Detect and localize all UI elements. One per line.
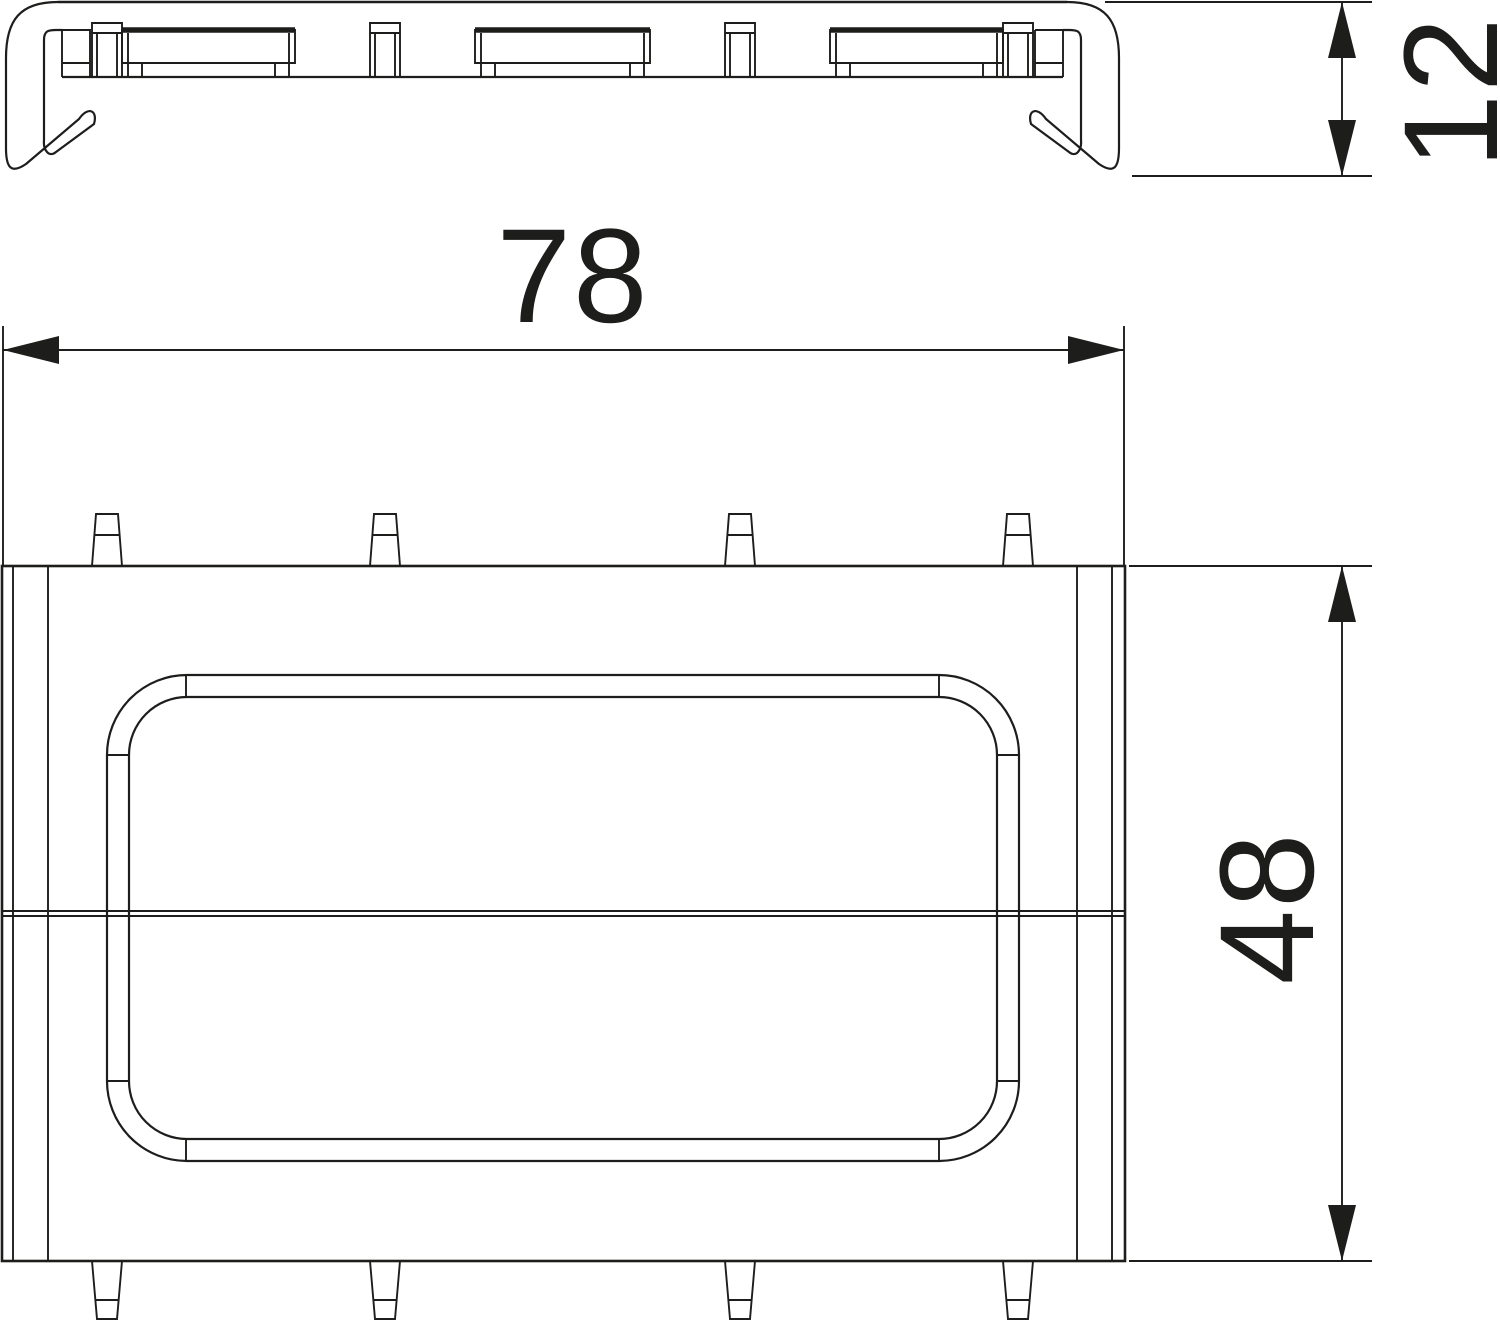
clamp-plate	[475, 29, 650, 77]
clamp-plate	[122, 29, 295, 77]
plan-outline	[2, 566, 1125, 1261]
profile-view	[6, 2, 1119, 169]
recess-corner-ticks	[107, 675, 1019, 1161]
plan-top-tabs	[92, 514, 1033, 566]
plan-recess-frame	[107, 675, 1019, 1161]
width-arrow-right	[1068, 336, 1124, 364]
plan-bottom-tabs	[92, 1261, 1033, 1319]
latch-tab-top	[370, 514, 400, 566]
clamp-plate	[830, 29, 1003, 77]
height-arrow-up	[1328, 566, 1356, 622]
latch-tab-bottom	[370, 1261, 400, 1319]
profile-right-hook	[1030, 2, 1119, 169]
recess-inner	[129, 697, 997, 1139]
plan-view	[2, 514, 1125, 1319]
profile-right-block	[1035, 30, 1063, 77]
latch-tab-top	[1003, 514, 1033, 566]
height-dimension: 48	[1129, 566, 1372, 1261]
technical-drawing: 12 78	[0, 0, 1500, 1321]
latch-tab-top	[725, 514, 755, 566]
depth-arrow-up	[1328, 2, 1356, 58]
plan-middle-seam	[2, 911, 1125, 916]
depth-dimension: 12	[1105, 2, 1500, 176]
latch-post	[725, 23, 755, 77]
depth-dimension-label: 12	[1377, 15, 1500, 168]
profile-left-hook	[6, 2, 95, 169]
profile-left-block	[62, 30, 90, 77]
depth-arrow-down	[1328, 120, 1356, 176]
width-dimension-label: 78	[496, 202, 649, 351]
width-dimension: 78	[3, 202, 1124, 566]
recess-outer	[107, 675, 1019, 1161]
technical-drawing-page: 12 78	[0, 0, 1500, 1321]
latch-tab-top	[92, 514, 122, 566]
latch-tab-bottom	[1003, 1261, 1033, 1319]
latch-tab-bottom	[92, 1261, 122, 1319]
plan-left-end-lines	[13, 566, 48, 1261]
latch-post	[1003, 23, 1033, 77]
latch-tab-bottom	[725, 1261, 755, 1319]
width-extension-lines	[3, 326, 1124, 566]
latch-post	[370, 23, 400, 77]
height-dimension-label: 48	[1193, 831, 1342, 984]
width-arrow-left	[3, 336, 59, 364]
depth-extension-lines	[1105, 2, 1372, 176]
profile-clamp-plates	[122, 29, 1003, 77]
plan-right-end-lines	[1077, 566, 1112, 1261]
latch-post	[92, 23, 122, 77]
height-arrow-down	[1328, 1205, 1356, 1261]
